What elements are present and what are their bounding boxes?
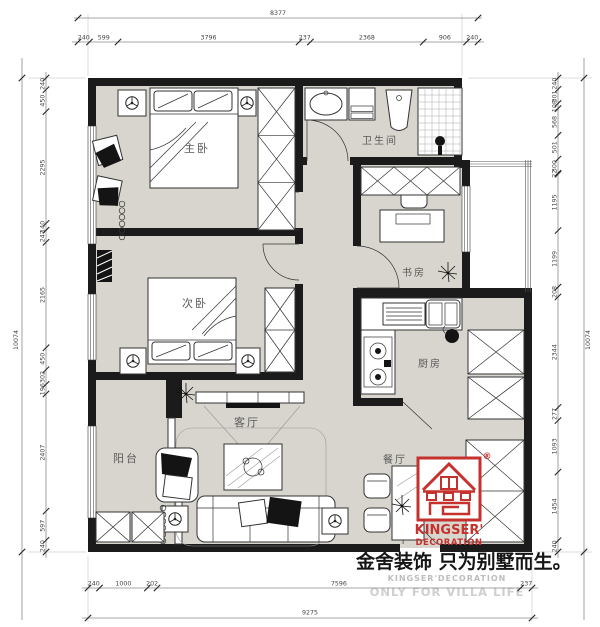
floor-plan-drawing: 主卧 次卧 卫生间 书房 <box>0 0 600 627</box>
registered-mark: ® <box>483 452 492 462</box>
dim-label: 2295 <box>40 160 47 176</box>
dim-right-segments: 2403011085685013002211951199208234427710… <box>552 72 562 558</box>
dim-label: 1454 <box>552 498 559 514</box>
label-dining: 餐厅 <box>383 453 407 466</box>
label-second-bedroom: 次卧 <box>182 296 208 310</box>
label-living: 客厅 <box>234 415 260 429</box>
dim-label: 237 <box>299 35 311 42</box>
dim-label: 2344 <box>552 344 559 360</box>
dim-label: 247 <box>40 230 47 242</box>
dim-left-overall: 10074 <box>13 330 20 350</box>
dim-label: 450 <box>40 353 47 365</box>
label-kitchen: 厨房 <box>418 357 442 370</box>
label-balcony: 阳台 <box>113 451 139 465</box>
dim-label: 1093 <box>552 438 559 454</box>
dim-label: 277 <box>552 408 559 420</box>
dim-label: 2165 <box>40 287 47 303</box>
dim-top-overall: 8377 <box>270 10 286 17</box>
dim-label: 597 <box>40 520 47 532</box>
dim-label: 240 <box>78 35 90 42</box>
dim-label: 1195 <box>552 194 559 210</box>
dim-right-overall: 10074 <box>585 330 592 350</box>
dim-label: 450 <box>40 95 47 107</box>
dim-left-segments: 240450229514024721654503021962407597240 <box>40 72 50 558</box>
dim-label: 208 <box>552 286 559 298</box>
dim-label: 240 <box>40 540 47 552</box>
dim-bottom-overall: 9275 <box>302 610 318 617</box>
floor-plan-page: 主卧 次卧 卫生间 书房 <box>0 0 600 627</box>
dim-label: 240 <box>40 78 47 90</box>
watermark-line1: KINGSER'DECORATION <box>388 574 507 583</box>
dim-label: 202 <box>146 581 158 588</box>
dim-label: 3796 <box>201 35 217 42</box>
logo-text-2: DECORATION <box>415 538 482 548</box>
dim-label: 501 <box>552 141 559 153</box>
label-study: 书房 <box>402 266 426 279</box>
dim-label: 906 <box>439 35 451 42</box>
dim-label: 568 <box>552 116 559 128</box>
dim-top-segments: 24059937962372368906240 <box>72 35 484 46</box>
dim-label: 108 <box>552 100 559 112</box>
dim-label: 240 <box>88 581 100 588</box>
dim-label: 302 <box>40 371 47 383</box>
dim-label: 7596 <box>331 581 347 588</box>
dim-label: 240 <box>552 78 559 90</box>
dim-label: 240 <box>552 540 559 552</box>
label-bathroom: 卫生间 <box>362 134 398 147</box>
watermark-line2: ONLY FOR VILLA LIFE <box>370 585 525 599</box>
dim-label: 237 <box>520 581 532 588</box>
logo-text-1: KINGSER' <box>415 523 484 538</box>
dim-label: 1199 <box>552 251 559 267</box>
brand-slogan: 金舍装饰 只为别墅而生。 <box>355 550 572 573</box>
dim-label: 1000 <box>115 581 131 588</box>
kingser-logo: ® KINGSER' DECORATION <box>415 452 492 548</box>
dim-label: 2407 <box>40 445 47 461</box>
dim-label: 196 <box>40 383 47 395</box>
dim-label: 240 <box>466 35 478 42</box>
dim-label: 599 <box>98 35 110 42</box>
dim-label: 2368 <box>359 35 375 42</box>
label-master-bedroom: 主卧 <box>184 142 210 155</box>
